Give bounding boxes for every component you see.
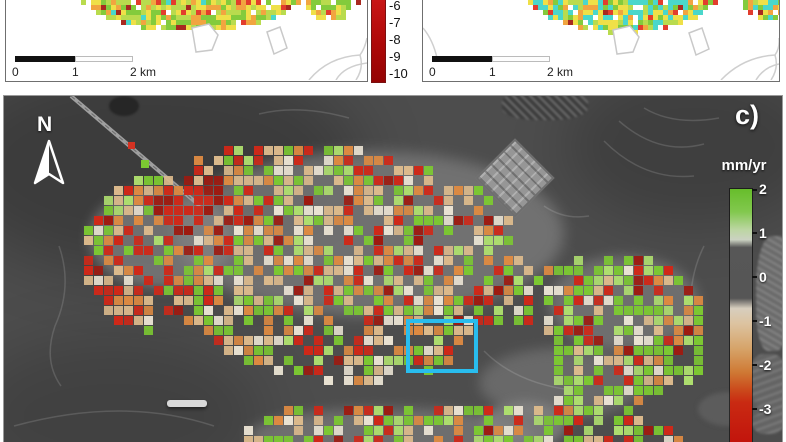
mosaic-cell [124, 296, 133, 305]
mosaic-cell [224, 326, 233, 335]
mosaic-cell [494, 236, 503, 245]
mosaic-cell [224, 166, 233, 175]
mosaic-cell [624, 416, 633, 425]
highlight-box [406, 319, 478, 373]
mosaic-cell [454, 276, 463, 285]
mosaic-cell [124, 206, 133, 215]
mosaic-cell [204, 226, 213, 235]
mosaic-cell [574, 336, 583, 345]
mosaic-cell [664, 296, 673, 305]
mosaic-cell [224, 176, 233, 185]
mosaic-cell [254, 356, 263, 365]
mosaic-cell [264, 166, 273, 175]
mosaic-cell [374, 306, 383, 315]
mosaic-cell [304, 326, 313, 335]
mosaic-cell [344, 286, 353, 295]
mosaic-cell [354, 406, 363, 415]
mosaic-cell [554, 366, 563, 375]
mosaic-cell [164, 276, 173, 285]
mosaic-cell [344, 356, 353, 365]
mosaic-cell [274, 226, 283, 235]
mosaic-cell [324, 266, 333, 275]
mosaic-cell [634, 366, 643, 375]
mosaic-cell [274, 276, 283, 285]
mosaic-cell [554, 326, 563, 335]
mosaic-cell [374, 186, 383, 195]
mosaic-cell [254, 176, 263, 185]
mosaic-cell [374, 246, 383, 255]
mosaic-cell [364, 176, 373, 185]
mosaic-cell [474, 186, 483, 195]
mosaic-cell [154, 236, 163, 245]
mosaic-cell [634, 426, 643, 435]
mosaic-cell [144, 246, 153, 255]
mosaic-cell [304, 176, 313, 185]
scalebar-label-2km: 2 km [547, 65, 573, 79]
mosaic-cell [474, 306, 483, 315]
mosaic-cell [694, 316, 703, 325]
mosaic-cell [214, 236, 223, 245]
mosaic-cell [574, 376, 583, 385]
mosaic-cell [384, 246, 393, 255]
mosaic-cell [604, 356, 613, 365]
mosaic-cell [234, 276, 243, 285]
mosaic-cell [174, 286, 183, 295]
mosaic-cell [614, 276, 623, 285]
mosaic-cell [464, 256, 473, 265]
mosaic-cell [294, 186, 303, 195]
mosaic-cell [524, 436, 533, 442]
mosaic-cell [134, 216, 143, 225]
mosaic-cell [654, 336, 663, 345]
mosaic-cell [194, 256, 203, 265]
mosaic-cell [684, 336, 693, 345]
mosaic-cell [194, 196, 203, 205]
mosaic-cell [344, 146, 353, 155]
mosaic-cell [204, 256, 213, 265]
mosaic-cell [324, 186, 333, 195]
mosaic-cell [374, 196, 383, 205]
mosaic-cell [124, 286, 133, 295]
mosaic-cell [104, 296, 113, 305]
mosaic-cell [274, 266, 283, 275]
mosaic-cell [134, 316, 143, 325]
mosaic-cell [264, 146, 273, 155]
mosaic-cell [164, 196, 173, 205]
mosaic-cell [84, 256, 93, 265]
mosaic-cell [344, 346, 353, 355]
mosaic-cell [514, 276, 523, 285]
mosaic-cell [164, 206, 173, 215]
mosaic-cell [604, 396, 613, 405]
mosaic-cell [114, 256, 123, 265]
mosaic-cell [244, 286, 253, 295]
mosaic-cell [134, 286, 143, 295]
mosaic-cell [404, 226, 413, 235]
mosaic-cell [644, 276, 653, 285]
mosaic-cell [554, 416, 563, 425]
mosaic-cell [674, 326, 683, 335]
mosaic-cell [144, 326, 153, 335]
mosaic-cell [594, 346, 603, 355]
mosaic-cell [464, 186, 473, 195]
mosaic-cell [354, 376, 363, 385]
mosaic-cell [364, 376, 373, 385]
scalebar-segment-white [492, 56, 550, 62]
mosaic-cell [204, 326, 213, 335]
mosaic-cell [614, 306, 623, 315]
mosaic-cell [364, 406, 373, 415]
mosaic-cell [274, 246, 283, 255]
mosaic-cell [264, 296, 273, 305]
mosaic-cell [294, 216, 303, 225]
mosaic-cell [604, 276, 613, 285]
mosaic-cell [554, 266, 563, 275]
mosaic-cell [314, 416, 323, 425]
mosaic-cell [114, 306, 123, 315]
mosaic-cell [204, 306, 213, 315]
mosaic-cell [554, 396, 563, 405]
mosaic-cell [664, 306, 673, 315]
mosaic-cell [674, 276, 683, 285]
mosaic-cell [404, 286, 413, 295]
mosaic-cell [324, 286, 333, 295]
mosaic-cell [174, 206, 183, 215]
mosaic-cell [494, 426, 503, 435]
mosaic-cell [334, 356, 343, 365]
mosaic-cell [294, 266, 303, 275]
mosaic-cell [364, 156, 373, 165]
mosaic-cell [404, 296, 413, 305]
mosaic-cell [204, 186, 213, 195]
mosaic-cell [484, 436, 493, 442]
mosaic-cell [284, 266, 293, 275]
mosaic-cell [564, 416, 573, 425]
mosaic-cell [544, 266, 553, 275]
mosaic-cell [694, 326, 703, 335]
mosaic-cell [384, 256, 393, 265]
mosaic-cell [374, 286, 383, 295]
mosaic-cell [574, 386, 583, 395]
colorbar-tickmark [752, 189, 757, 191]
mosaic-cell [624, 356, 633, 365]
mosaic-cell [354, 346, 363, 355]
colorbar-tick: 2 [759, 181, 783, 197]
mosaic-cell [444, 216, 453, 225]
mosaic-cell [364, 436, 373, 442]
mosaic-cell [374, 406, 383, 415]
mosaic-cell [274, 306, 283, 315]
mosaic-cell [324, 326, 333, 335]
mosaic-cell [224, 246, 233, 255]
mosaic-cell [434, 296, 443, 305]
mosaic-cell [134, 206, 143, 215]
mosaic-cell [484, 196, 493, 205]
mosaic-cell [544, 416, 553, 425]
mosaic-cell [374, 226, 383, 235]
mosaic-cell [314, 266, 323, 275]
mosaic-cell [344, 176, 353, 185]
mosaic-cell [234, 286, 243, 295]
mosaic-cell [234, 196, 243, 205]
colorbar-tickmark [752, 364, 757, 366]
mosaic-cell [194, 156, 203, 165]
mosaic-cell [394, 216, 403, 225]
mosaic-cell [414, 236, 423, 245]
mosaic-cell [384, 226, 393, 235]
mosaic-cell [544, 426, 553, 435]
mosaic-cell [514, 416, 523, 425]
mosaic-cell [184, 296, 193, 305]
mosaic-cell [314, 366, 323, 375]
mosaic-cell [414, 276, 423, 285]
mosaic-cell [234, 186, 243, 195]
mosaic-cell [94, 266, 103, 275]
mosaic-cell [424, 186, 433, 195]
mosaic-cell [204, 286, 213, 295]
mosaic-cell [344, 306, 353, 315]
mosaic-cell [234, 206, 243, 215]
mosaic-cell [374, 336, 383, 345]
mosaic-cell [694, 366, 703, 375]
mosaic-cell [234, 256, 243, 265]
mosaic-cell [394, 206, 403, 215]
mosaic-cell [214, 246, 223, 255]
mosaic-cell [324, 346, 333, 355]
mosaic-cell [354, 256, 363, 265]
mosaic-cell [594, 436, 603, 442]
mosaic-cell [404, 236, 413, 245]
mosaic-cell [594, 416, 603, 425]
mosaic-cell [244, 246, 253, 255]
mosaic-cell [114, 216, 123, 225]
mosaic-cell [584, 436, 593, 442]
mosaic-cell [634, 376, 643, 385]
mosaic-cell [504, 236, 513, 245]
mosaic-cell [444, 196, 453, 205]
mosaic-cell [464, 246, 473, 255]
mosaic-cell [294, 416, 303, 425]
mosaic-cell [124, 246, 133, 255]
mosaic-cell [644, 256, 653, 265]
mosaic-cell [684, 316, 693, 325]
mosaic-cell [654, 316, 663, 325]
mosaic-cell [114, 186, 123, 195]
mosaic-cell [554, 346, 563, 355]
mosaic-cell [134, 306, 143, 315]
mosaic-cell [484, 226, 493, 235]
mosaic-cell [574, 266, 583, 275]
mosaic-cell [384, 316, 393, 325]
mosaic-cell [434, 416, 443, 425]
mosaic-cell [644, 266, 653, 275]
mosaic-cell [654, 326, 663, 335]
mosaic-cell [194, 266, 203, 275]
mosaic-cell [554, 336, 563, 345]
mosaic-cell [504, 276, 513, 285]
mosaic-cell [134, 176, 143, 185]
mosaic-cell [654, 356, 663, 365]
mosaic-cell [324, 206, 333, 215]
mosaic-cell [614, 326, 623, 335]
mosaic-cell [214, 186, 223, 195]
mosaic-cell [184, 286, 193, 295]
mosaic-cell [394, 166, 403, 175]
mosaic-cell [214, 276, 223, 285]
mosaic-cell [194, 276, 203, 285]
panel-a-map: 0 1 2 km [5, 0, 368, 82]
mosaic-cell [454, 426, 463, 435]
mosaic-cell [574, 296, 583, 305]
mosaic-cell [304, 146, 313, 155]
mosaic-cell [104, 226, 113, 235]
mosaic-cell [394, 436, 403, 442]
mosaic-cell [424, 216, 433, 225]
mosaic-cell [334, 286, 343, 295]
mosaic-cell [284, 236, 293, 245]
mosaic-cell [334, 216, 343, 225]
mosaic-cell [404, 206, 413, 215]
mosaic-cell [414, 216, 423, 225]
mosaic-cell [284, 196, 293, 205]
mosaic-cell [404, 166, 413, 175]
mosaic-cell [564, 316, 573, 325]
mosaic-cell [534, 406, 543, 415]
mosaic-cell [304, 296, 313, 305]
velocity-colorbar-gradient [730, 189, 752, 442]
mosaic-cell [634, 346, 643, 355]
mosaic-cell [504, 406, 513, 415]
mosaic-cell [364, 346, 373, 355]
mosaic-cell [624, 316, 633, 325]
mosaic-cell [144, 186, 153, 195]
mosaic-cell [244, 236, 253, 245]
panel-c-label: c) [735, 100, 759, 131]
mosaic-cell [174, 196, 183, 205]
mosaic-cell [274, 366, 283, 375]
mosaic-cell [434, 266, 443, 275]
mosaic-cell [264, 276, 273, 285]
mosaic-cell [424, 166, 433, 175]
mosaic-cell [264, 316, 273, 325]
mosaic-cell [134, 266, 143, 275]
mosaic-cell [304, 236, 313, 245]
mosaic-cell [124, 306, 133, 315]
mosaic-cell [434, 246, 443, 255]
mosaic-cell [314, 216, 323, 225]
mosaic-cell [574, 346, 583, 355]
scalebar-segment-black [15, 56, 75, 62]
mosaic-cell [584, 406, 593, 415]
mosaic-cell [424, 426, 433, 435]
mosaic-cell [544, 436, 553, 442]
mosaic-cell [204, 296, 213, 305]
mosaic-cell [504, 436, 513, 442]
mosaic-cell [174, 306, 183, 315]
mosaic-cell [674, 366, 683, 375]
mosaic-cell [214, 286, 223, 295]
mosaic-cell [234, 306, 243, 315]
mosaic-cell [404, 196, 413, 205]
mosaic-cell [614, 346, 623, 355]
mosaic-cell [284, 416, 293, 425]
mosaic-cell [384, 336, 393, 345]
mosaic-cell [224, 216, 233, 225]
mosaic-cell [414, 256, 423, 265]
mosaic-cell [234, 146, 243, 155]
mosaic-cell [114, 286, 123, 295]
mosaic-cell [444, 406, 453, 415]
mosaic-cell [284, 316, 293, 325]
mosaic-cell [244, 336, 253, 345]
mosaic-cell [304, 226, 313, 235]
mosaic-cell [414, 266, 423, 275]
mosaic-cell [264, 236, 273, 245]
mosaic-cell [434, 286, 443, 295]
mosaic-cell [304, 346, 313, 355]
mosaic-cell [184, 206, 193, 215]
scalebar-label-1: 1 [489, 65, 496, 79]
mosaic-cell [224, 346, 233, 355]
mosaic-cell [244, 306, 253, 315]
mosaic-cell [174, 216, 183, 225]
mosaic-cell [254, 216, 263, 225]
mosaic-cell [234, 266, 243, 275]
mosaic-cell [424, 286, 433, 295]
mosaic-cell [664, 336, 673, 345]
mosaic-cell [394, 186, 403, 195]
mosaic-cell [444, 246, 453, 255]
mosaic-cell [584, 276, 593, 285]
mosaic-cell [324, 276, 333, 285]
mosaic-cell [374, 296, 383, 305]
mosaic-cell [204, 316, 213, 325]
mosaic-cell [354, 166, 363, 175]
mosaic-cell [634, 256, 643, 265]
mosaic-cell [254, 296, 263, 305]
mosaic-cell [684, 306, 693, 315]
mosaic-cell [144, 226, 153, 235]
mosaic-cell [424, 306, 433, 315]
mosaic-cell [434, 406, 443, 415]
mosaic-cell [84, 236, 93, 245]
mosaic-cell [594, 266, 603, 275]
mosaic-cell [454, 216, 463, 225]
mosaic-cell [494, 436, 503, 442]
mosaic-cell [394, 196, 403, 205]
mosaic-cell [624, 256, 633, 265]
mosaic-cell [334, 436, 343, 442]
mosaic-cell [274, 296, 283, 305]
mosaic-cell [184, 316, 193, 325]
mosaic-cell [264, 336, 273, 345]
mosaic-cell [364, 286, 373, 295]
mosaic-cell [424, 206, 433, 215]
mosaic-cell [424, 416, 433, 425]
mosaic-cell [394, 226, 403, 235]
colorbar-tick: -1 [759, 313, 783, 329]
mosaic-cell [214, 326, 223, 335]
mosaic-cell [444, 226, 453, 235]
mosaic-cell [144, 276, 153, 285]
mosaic-cell [424, 226, 433, 235]
mosaic-cell [404, 306, 413, 315]
mosaic-cell [584, 286, 593, 295]
mosaic-cell [244, 316, 253, 325]
mosaic-cell [544, 326, 553, 335]
mosaic-cell [264, 196, 273, 205]
mosaic-cell [344, 206, 353, 215]
